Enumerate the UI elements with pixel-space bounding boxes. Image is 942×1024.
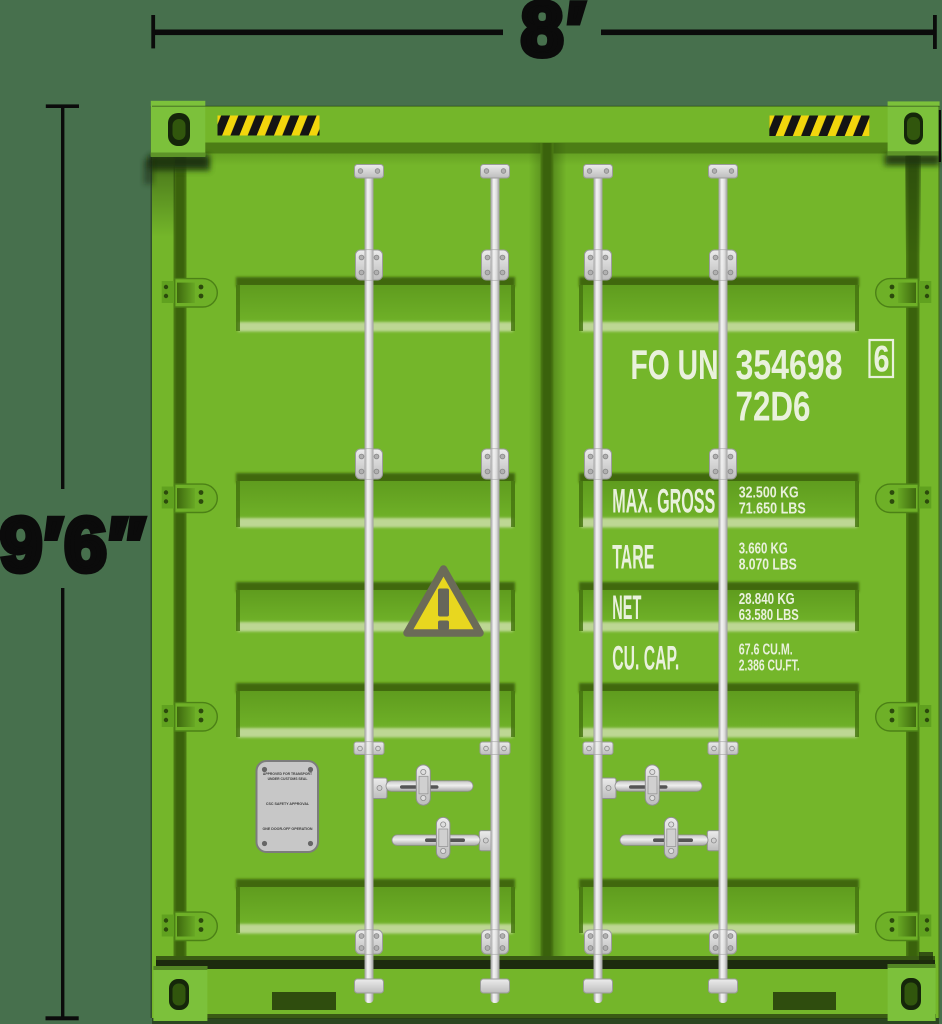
svg-text:28.840 KG: 28.840 KG [739, 591, 795, 608]
svg-text:3.660 KG: 3.660 KG [739, 541, 788, 558]
svg-text:8.070 LBS: 8.070 LBS [739, 557, 797, 574]
svg-text:CSC SAFETY APPROVAL: CSC SAFETY APPROVAL [266, 802, 310, 806]
svg-text:71.650 LBS: 71.650 LBS [739, 501, 806, 518]
svg-text:CU. CAP.: CU. CAP. [612, 640, 679, 678]
svg-text:UNDER CUSTOMS SEAL: UNDER CUSTOMS SEAL [268, 777, 308, 781]
svg-text:6: 6 [874, 339, 890, 380]
svg-text:NET: NET [612, 589, 641, 627]
svg-text:ONE DOOR-OFF OPERATION: ONE DOOR-OFF OPERATION [262, 827, 312, 831]
svg-text:63.580 LBS: 63.580 LBS [739, 607, 799, 624]
svg-text:32.500 KG: 32.500 KG [739, 485, 799, 502]
svg-text:8′: 8′ [521, 0, 585, 73]
svg-text:72D6: 72D6 [736, 383, 811, 430]
svg-text:FO UN: FO UN [631, 341, 719, 388]
svg-text:TARE: TARE [612, 538, 654, 576]
svg-text:354698: 354698 [736, 341, 843, 388]
svg-text:2.386 CU.FT.: 2.386 CU.FT. [739, 658, 800, 675]
svg-text:MAX. GROSS: MAX. GROSS [612, 482, 715, 520]
svg-text:APPROVED FOR TRANSPORT: APPROVED FOR TRANSPORT [263, 772, 313, 776]
svg-text:9′6″: 9′6″ [0, 503, 145, 588]
svg-text:67.6 CU.M.: 67.6 CU.M. [739, 642, 793, 659]
